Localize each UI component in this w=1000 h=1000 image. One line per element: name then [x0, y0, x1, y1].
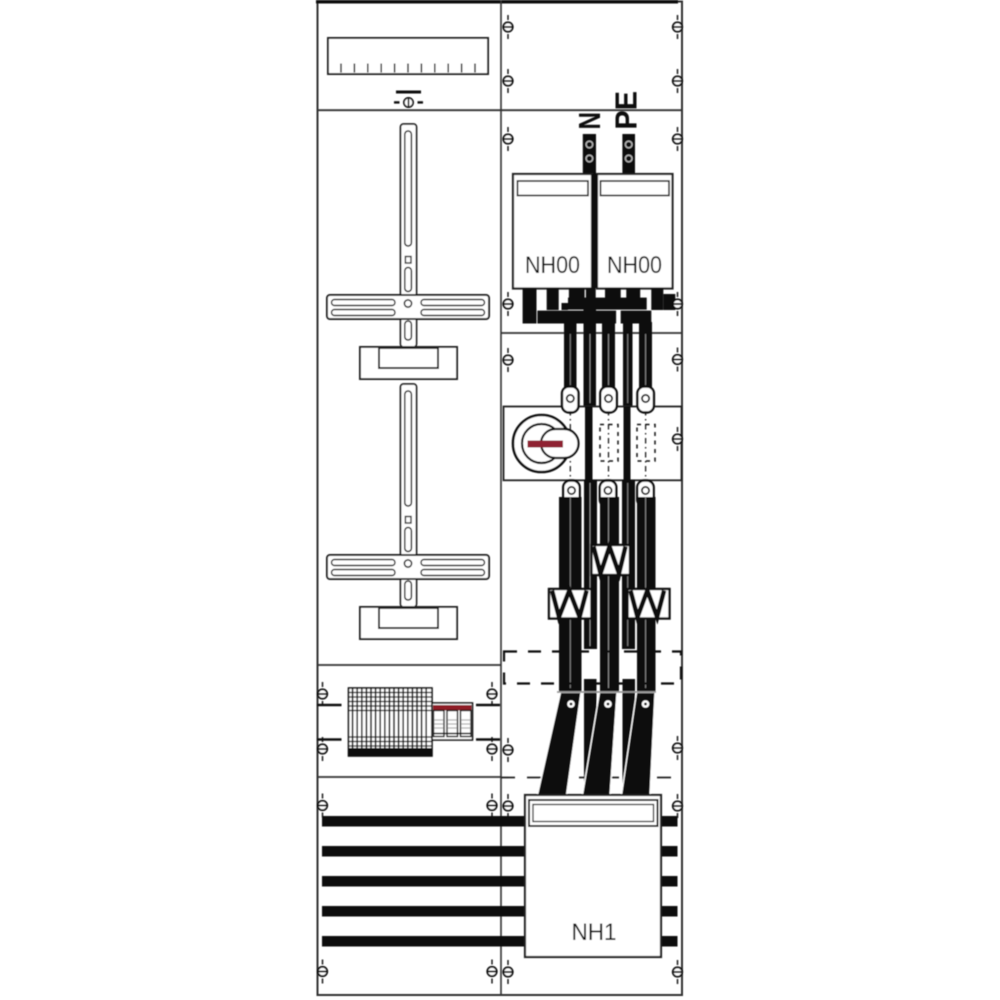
- svg-text:NH00: NH00: [525, 252, 580, 279]
- svg-text:NH00: NH00: [607, 252, 662, 279]
- svg-text:N: N: [572, 112, 607, 130]
- svg-text:NH1: NH1: [572, 919, 617, 946]
- svg-text:PE: PE: [609, 91, 644, 130]
